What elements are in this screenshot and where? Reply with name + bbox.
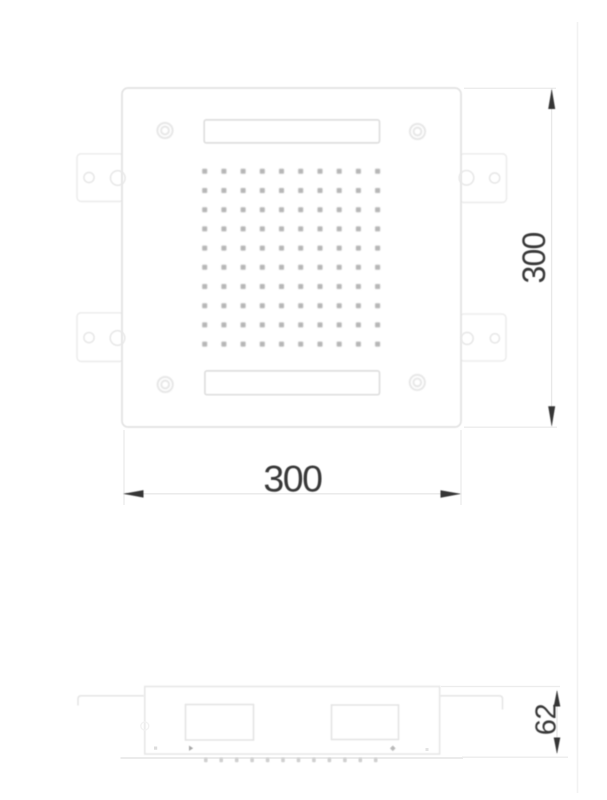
svg-text:62: 62	[531, 704, 563, 735]
svg-text:300: 300	[263, 458, 322, 500]
svg-text:300: 300	[516, 233, 552, 284]
